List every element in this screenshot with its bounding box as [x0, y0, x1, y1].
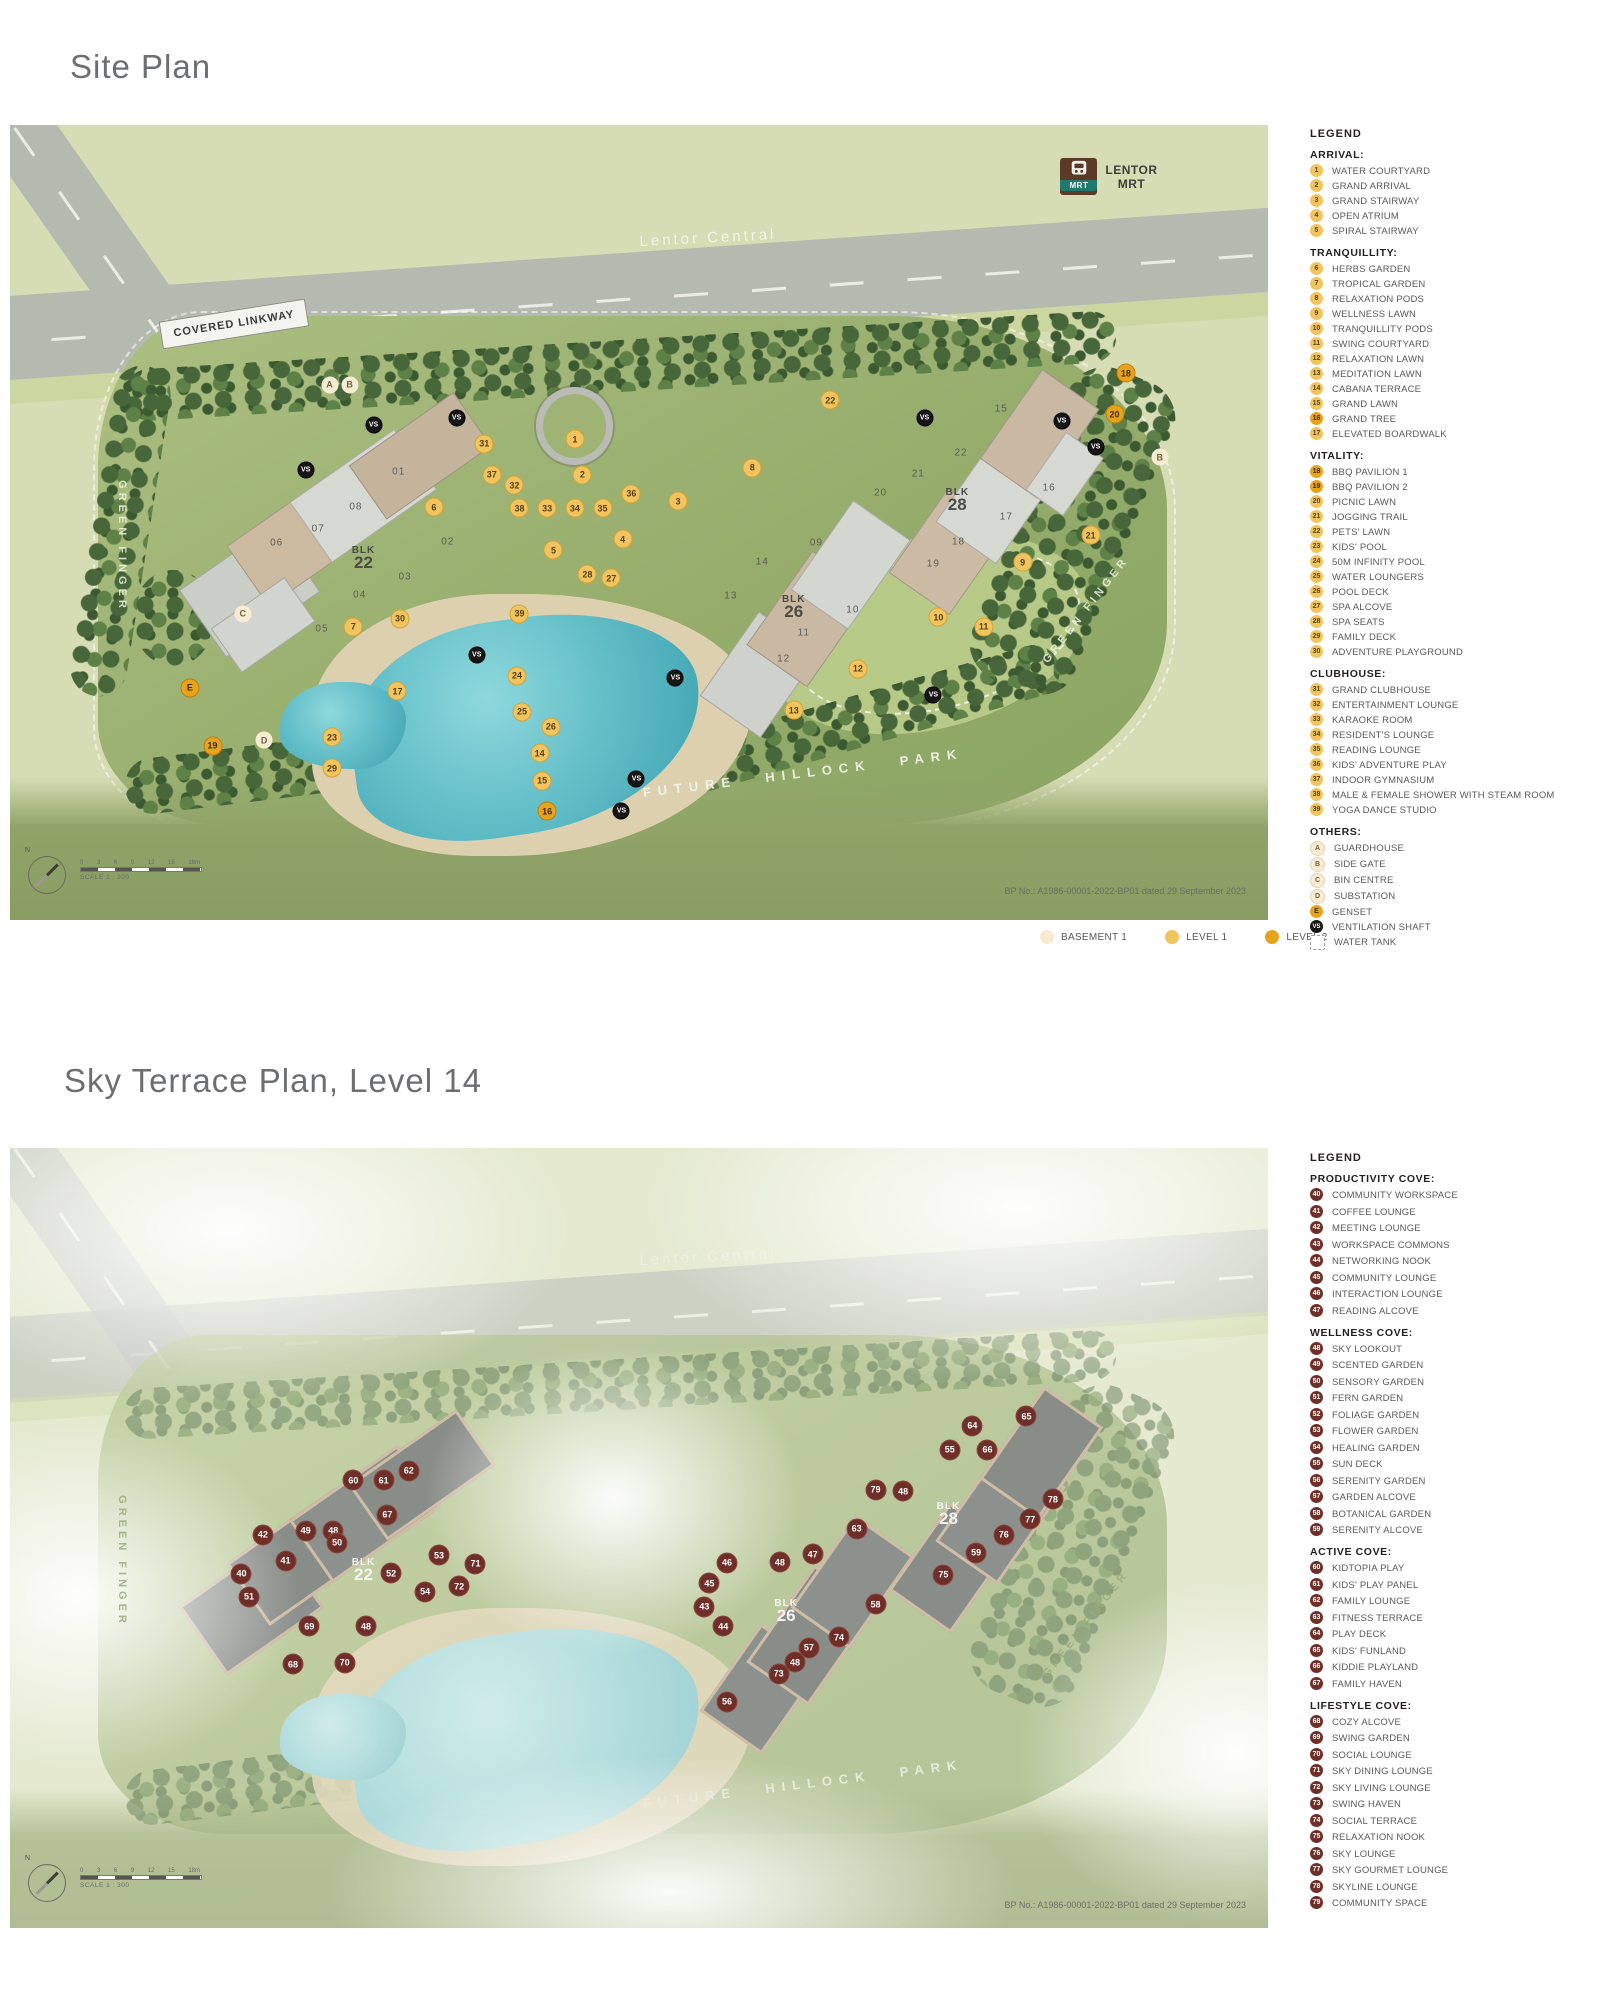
- legend-item-label: RELAXATION PODS: [1332, 292, 1424, 306]
- terrace-marker-76: 76: [993, 1524, 1014, 1545]
- legend-marker: 3: [1310, 194, 1323, 207]
- legend-item-label: SPA SEATS: [1332, 615, 1385, 629]
- legend-marker: 45: [1310, 1271, 1323, 1284]
- sky-terrace-title: Sky Terrace Plan, Level 14: [64, 1062, 482, 1100]
- legend-item-label: BOTANICAL GARDEN: [1332, 1507, 1431, 1521]
- legend-marker: 24: [1310, 555, 1323, 568]
- legend-item-label: SWING GARDEN: [1332, 1731, 1410, 1745]
- terrace-marker-54: 54: [415, 1581, 436, 1602]
- legend-item: 68COZY ALCOVE: [1310, 1715, 1596, 1729]
- legend-section-header: ARRIVAL:: [1310, 149, 1596, 161]
- legend-item: 48SKY LOOKOUT: [1310, 1342, 1596, 1356]
- legend-marker: 46: [1310, 1287, 1323, 1300]
- legend-marker: 70: [1310, 1748, 1323, 1761]
- legend-item: 4OPEN ATRIUM: [1310, 209, 1596, 223]
- legend-marker: 17: [1310, 427, 1323, 440]
- legend-marker: 71: [1310, 1764, 1323, 1777]
- level-key: BASEMENT 1LEVEL 1LEVEL 2: [1040, 930, 1328, 944]
- legend-item: 44NETWORKING NOOK: [1310, 1254, 1596, 1268]
- sky-terrace-markers-layer: BLK22BLK26BLK284041424344454647484848484…: [10, 1148, 1268, 1928]
- legend-item: 67FAMILY HAVEN: [1310, 1677, 1596, 1691]
- terrace-marker-61: 61: [373, 1470, 394, 1491]
- legend-section-header: PRODUCTIVITY COVE:: [1310, 1173, 1596, 1185]
- vs-marker-: VS: [628, 771, 645, 788]
- legend-item-label: INDOOR GYMNASIUM: [1332, 773, 1434, 787]
- legend-marker: 67: [1310, 1677, 1323, 1690]
- terrace-marker-56: 56: [717, 1691, 738, 1712]
- unit-label-04: 04: [353, 589, 366, 600]
- legend-item-label: ELEVATED BOARDWALK: [1332, 427, 1447, 441]
- legend-marker: 53: [1310, 1424, 1323, 1437]
- legend-item-label: FAMILY LOUNGE: [1332, 1594, 1410, 1608]
- site-marker-37: 37: [482, 465, 501, 484]
- site-marker-10: 10: [929, 608, 948, 627]
- bp-number: BP No.: A1986-00001-2022-BP01 dated 29 S…: [1004, 1900, 1246, 1910]
- site-marker-24: 24: [507, 666, 526, 685]
- legend-item-label: RESIDENT'S LOUNGE: [1332, 728, 1434, 742]
- legend-item: 13MEDITATION LAWN: [1310, 367, 1596, 381]
- legend-item: 6HERBS GARDEN: [1310, 262, 1596, 276]
- block-label-26: BLK26: [782, 594, 806, 618]
- site-marker-2: 2: [573, 465, 592, 484]
- vs-marker-: VS: [1053, 412, 1070, 429]
- site-marker-15: 15: [533, 771, 552, 790]
- scale-bar-stripes: [80, 867, 202, 872]
- unit-label-08: 08: [349, 502, 362, 513]
- legend-marker: 21: [1310, 510, 1323, 523]
- terrace-marker-43: 43: [694, 1596, 715, 1617]
- legend-title: LEGEND: [1310, 128, 1596, 140]
- legend-marker: 52: [1310, 1408, 1323, 1421]
- unit-label-22: 22: [954, 448, 967, 459]
- legend-section-header: CLUBHOUSE:: [1310, 668, 1596, 680]
- site-marker-25: 25: [513, 702, 532, 721]
- legend-item-label: GRAND TREE: [1332, 412, 1396, 426]
- unit-label-01: 01: [392, 466, 405, 477]
- site-marker-19: 19: [203, 736, 222, 755]
- legend-marker: 20: [1310, 495, 1323, 508]
- terrace-marker-47: 47: [802, 1544, 823, 1565]
- legend-item-label: BBQ PAVILION 1: [1332, 465, 1408, 479]
- block-label-22: BLK22: [352, 545, 376, 569]
- brochure-page: { "site_plan": { "title": "Site Plan", "…: [0, 0, 1600, 2012]
- legend-marker: 12: [1310, 352, 1323, 365]
- legend-item-label: KARAOKE ROOM: [1332, 713, 1413, 727]
- terrace-marker-67: 67: [377, 1504, 398, 1525]
- level-key-dot: [1165, 930, 1179, 944]
- terrace-marker-49: 49: [295, 1520, 316, 1541]
- mrt-name: LENTOR MRT: [1105, 163, 1157, 191]
- site-letter-B: B: [1151, 449, 1168, 466]
- unit-label-09: 09: [810, 538, 823, 549]
- terrace-marker-48: 48: [893, 1481, 914, 1502]
- north-label: N: [25, 1855, 30, 1862]
- legend-item: 10TRANQUILLITY PODS: [1310, 322, 1596, 336]
- legend-item-label: BIN CENTRE: [1334, 873, 1394, 887]
- site-plan-markers-layer: 0102030405060708091011121314151617181920…: [10, 125, 1268, 920]
- legend-item-label: RELAXATION NOOK: [1332, 1830, 1425, 1844]
- unit-label-10: 10: [846, 604, 859, 615]
- bp-number: BP No.: A1986-00001-2022-BP01 dated 29 S…: [1004, 886, 1246, 896]
- legend-item: 63FITNESS TERRACE: [1310, 1611, 1596, 1625]
- legend-item: 45COMMUNITY LOUNGE: [1310, 1271, 1596, 1285]
- legend-marker: 49: [1310, 1358, 1323, 1371]
- legend-item: 9WELLNESS LAWN: [1310, 307, 1596, 321]
- legend-item-label: ENTERTAINMENT LOUNGE: [1332, 698, 1458, 712]
- site-marker-16: 16: [538, 802, 557, 821]
- terrace-marker-50: 50: [327, 1532, 348, 1553]
- legend-marker: 28: [1310, 615, 1323, 628]
- level-key-label: BASEMENT 1: [1061, 932, 1127, 943]
- legend-item: DSUBSTATION: [1310, 889, 1596, 904]
- legend-item: 62FAMILY LOUNGE: [1310, 1594, 1596, 1608]
- legend-item: 76SKY LOUNGE: [1310, 1847, 1596, 1861]
- legend-item-label: SWING HAVEN: [1332, 1797, 1401, 1811]
- legend-item-label: SERENITY ALCOVE: [1332, 1523, 1423, 1537]
- legend-item: 39YOGA DANCE STUDIO: [1310, 803, 1596, 817]
- block-label-number: 22: [352, 1569, 376, 1581]
- scale-tick: 9: [131, 860, 134, 866]
- site-marker-35: 35: [593, 499, 612, 518]
- legend-item-label: WATER LOUNGERS: [1332, 570, 1424, 584]
- legend-section-header: VITALITY:: [1310, 450, 1596, 462]
- terrace-marker-71: 71: [465, 1553, 486, 1574]
- legend-item: 19BBQ PAVILION 2: [1310, 480, 1596, 494]
- vs-marker-: VS: [613, 803, 630, 820]
- unit-label-13: 13: [724, 590, 737, 601]
- site-marker-17: 17: [388, 682, 407, 701]
- unit-label-07: 07: [312, 523, 325, 534]
- legend-item-label: SPIRAL STAIRWAY: [1332, 224, 1419, 238]
- legend-section-header: OTHERS:: [1310, 826, 1596, 838]
- legend-item: 49SCENTED GARDEN: [1310, 1358, 1596, 1372]
- vs-marker-: VS: [925, 687, 942, 704]
- legend-marker: 18: [1310, 465, 1323, 478]
- legend-marker: 40: [1310, 1188, 1323, 1201]
- scale-bar: 0369121518m SCALE 1 : 300: [80, 1864, 202, 1889]
- legend-item: 73SWING HAVEN: [1310, 1797, 1596, 1811]
- legend-marker: B: [1310, 857, 1325, 872]
- legend-marker: 13: [1310, 367, 1323, 380]
- terrace-marker-63: 63: [846, 1518, 867, 1539]
- legend-item: 59SERENITY ALCOVE: [1310, 1523, 1596, 1537]
- legend-item: 61KIDS' PLAY PANEL: [1310, 1578, 1596, 1592]
- block-label-number: 28: [937, 1513, 961, 1525]
- legend-item: 64PLAY DECK: [1310, 1627, 1596, 1641]
- legend-item: 7TROPICAL GARDEN: [1310, 277, 1596, 291]
- compass-icon: N: [28, 1864, 66, 1902]
- legend-item: 42MEETING LOUNGE: [1310, 1221, 1596, 1235]
- site-marker-8: 8: [743, 458, 762, 477]
- legend-item-label: COZY ALCOVE: [1332, 1715, 1401, 1729]
- legend-item: 32ENTERTAINMENT LOUNGE: [1310, 698, 1596, 712]
- vs-marker-: VS: [365, 416, 382, 433]
- mrt-band-text: MRT: [1060, 180, 1097, 191]
- scale-tick: 0: [80, 1868, 83, 1874]
- unit-label-21: 21: [912, 469, 925, 480]
- site-marker-1: 1: [565, 430, 584, 449]
- legend-item-label: BBQ PAVILION 2: [1332, 480, 1408, 494]
- legend-item: 70SOCIAL LOUNGE: [1310, 1748, 1596, 1762]
- legend-item: 14CABANA TERRACE: [1310, 382, 1596, 396]
- legend-item-label: KIDS' ADVENTURE PLAY: [1332, 758, 1447, 772]
- legend-section-header: ACTIVE COVE:: [1310, 1546, 1596, 1558]
- terrace-marker-44: 44: [713, 1616, 734, 1637]
- unit-label-05: 05: [315, 624, 328, 635]
- legend-item-label: RELAXATION LAWN: [1332, 352, 1424, 366]
- site-marker-28: 28: [578, 565, 597, 584]
- legend-item-label: GRAND CLUBHOUSE: [1332, 683, 1431, 697]
- legend-item-label: SKY LOUNGE: [1332, 1847, 1396, 1861]
- legend-marker: 36: [1310, 758, 1323, 771]
- legend-marker: 75: [1310, 1830, 1323, 1843]
- unit-label-12: 12: [777, 654, 790, 665]
- legend-marker: 66: [1310, 1660, 1323, 1673]
- legend-item: 38MALE & FEMALE SHOWER WITH STEAM ROOM: [1310, 788, 1596, 802]
- terrace-marker-42: 42: [252, 1524, 273, 1545]
- legend-item-label: GRAND STAIRWAY: [1332, 194, 1419, 208]
- legend-marker: 4: [1310, 209, 1323, 222]
- terrace-marker-60: 60: [343, 1470, 364, 1491]
- legend-section-header: WELLNESS COVE:: [1310, 1327, 1596, 1339]
- site-marker-12: 12: [848, 659, 867, 678]
- terrace-marker-40: 40: [231, 1563, 252, 1584]
- legend-item-label: WATER COURTYARD: [1332, 164, 1430, 178]
- legend-item: 43WORKSPACE COMMONS: [1310, 1238, 1596, 1252]
- site-marker-36: 36: [622, 484, 641, 503]
- legend-marker: 34: [1310, 728, 1323, 741]
- site-marker-9: 9: [1013, 553, 1032, 572]
- legend-item-label: SUN DECK: [1332, 1457, 1383, 1471]
- legend-marker: 60: [1310, 1561, 1323, 1574]
- legend-marker: VS: [1310, 920, 1323, 933]
- site-marker-6: 6: [424, 498, 443, 517]
- site-letter-A: A: [321, 376, 338, 393]
- unit-label-14: 14: [756, 557, 769, 568]
- legend-item: BSIDE GATE: [1310, 857, 1596, 872]
- site-marker-14: 14: [530, 744, 549, 763]
- legend-marker: 68: [1310, 1715, 1323, 1728]
- legend-marker: 72: [1310, 1781, 1323, 1794]
- unit-label-06: 06: [270, 538, 283, 549]
- legend-item-label: GRAND ARRIVAL: [1332, 179, 1411, 193]
- legend-item-label: MEETING LOUNGE: [1332, 1221, 1421, 1235]
- site-letter-B: B: [341, 376, 358, 393]
- legend-marker: 77: [1310, 1863, 1323, 1876]
- legend-item: 78SKYLINE LOUNGE: [1310, 1880, 1596, 1894]
- legend-item: 56SERENITY GARDEN: [1310, 1474, 1596, 1488]
- level-key-item: BASEMENT 1: [1040, 930, 1127, 944]
- legend-marker: 16: [1310, 412, 1323, 425]
- legend-item: 65KIDS' FUNLAND: [1310, 1644, 1596, 1658]
- legend-item-label: SKY LOOKOUT: [1332, 1342, 1402, 1356]
- unit-label-19: 19: [927, 558, 940, 569]
- terrace-marker-55: 55: [939, 1439, 960, 1460]
- scale-ticks: 0369121518m: [80, 1868, 200, 1874]
- legend-marker: 62: [1310, 1594, 1323, 1607]
- unit-label-03: 03: [398, 572, 411, 583]
- legend-marker: 58: [1310, 1507, 1323, 1520]
- legend-item: 27SPA ALCOVE: [1310, 600, 1596, 614]
- legend-item-label: FOLIAGE GARDEN: [1332, 1408, 1419, 1422]
- legend-item: 51FERN GARDEN: [1310, 1391, 1596, 1405]
- legend-item-label: YOGA DANCE STUDIO: [1332, 803, 1437, 817]
- level-key-dot: [1265, 930, 1279, 944]
- legend-item: 25WATER LOUNGERS: [1310, 570, 1596, 584]
- legend-marker: 2: [1310, 179, 1323, 192]
- terrace-marker-52: 52: [381, 1563, 402, 1584]
- legend-item-label: FAMILY HAVEN: [1332, 1677, 1402, 1691]
- scale-compass: N 0369121518m SCALE 1 : 300: [28, 856, 202, 894]
- site-marker-26: 26: [541, 717, 560, 736]
- terrace-marker-62: 62: [398, 1460, 419, 1481]
- legend-item-label: FITNESS TERRACE: [1332, 1611, 1423, 1625]
- legend-item-label: VENTILATION SHAFT: [1332, 920, 1431, 934]
- scale-tick: 0: [80, 860, 83, 866]
- terrace-marker-68: 68: [283, 1654, 304, 1675]
- legend-item-label: ADVENTURE PLAYGROUND: [1332, 645, 1463, 659]
- legend-marker: 1: [1310, 164, 1323, 177]
- legend-item-label: SUBSTATION: [1334, 889, 1395, 903]
- scale-tick: 3: [97, 1868, 100, 1874]
- terrace-marker-51: 51: [239, 1586, 260, 1607]
- legend-item-label: CABANA TERRACE: [1332, 382, 1421, 396]
- legend-item: 55SUN DECK: [1310, 1457, 1596, 1471]
- legend-item-label: SWING COURTYARD: [1332, 337, 1429, 351]
- lentor-mrt-badge: MRT LENTOR MRT: [1060, 158, 1157, 195]
- scale-text: SCALE 1 : 300: [80, 1882, 202, 1889]
- legend-marker: 7: [1310, 277, 1323, 290]
- legend-marker: 37: [1310, 773, 1323, 786]
- legend-item: 11SWING COURTYARD: [1310, 337, 1596, 351]
- legend-item-label: KIDTOPIA PLAY: [1332, 1561, 1404, 1575]
- site-letter-D: D: [256, 732, 273, 749]
- vs-marker-: VS: [916, 410, 933, 427]
- legend-item-label: HERBS GARDEN: [1332, 262, 1410, 276]
- legend-marker: 55: [1310, 1457, 1323, 1470]
- north-label: N: [25, 847, 30, 854]
- legend-item: 36KIDS' ADVENTURE PLAY: [1310, 758, 1596, 772]
- compass-icon: N: [28, 856, 66, 894]
- legend-item: EGENSET: [1310, 905, 1596, 919]
- legend-marker: 61: [1310, 1578, 1323, 1591]
- terrace-marker-59: 59: [966, 1542, 987, 1563]
- legend-item-label: COMMUNITY LOUNGE: [1332, 1271, 1436, 1285]
- site-marker-5: 5: [544, 541, 563, 560]
- level-key-label: LEVEL 1: [1186, 932, 1227, 943]
- legend-item: 18BBQ PAVILION 1: [1310, 465, 1596, 479]
- legend-marker: 57: [1310, 1490, 1323, 1503]
- legend-item-label: KIDDIE PLAYLAND: [1332, 1660, 1418, 1674]
- legend-item: 57GARDEN ALCOVE: [1310, 1490, 1596, 1504]
- legend-marker: 38: [1310, 788, 1323, 801]
- legend-item: 71SKY DINING LOUNGE: [1310, 1764, 1596, 1778]
- mrt-name-line1: LENTOR: [1105, 163, 1157, 177]
- legend-marker: 25: [1310, 570, 1323, 583]
- legend-item: 16GRAND TREE: [1310, 412, 1596, 426]
- legend-item: 15GRAND LAWN: [1310, 397, 1596, 411]
- legend-item-label: COMMUNITY SPACE: [1332, 1896, 1428, 1910]
- legend-item-label: SOCIAL LOUNGE: [1332, 1748, 1412, 1762]
- legend-marker: 76: [1310, 1847, 1323, 1860]
- mrt-name-line2: MRT: [1105, 177, 1157, 191]
- legend-item: 41COFFEE LOUNGE: [1310, 1205, 1596, 1219]
- site-marker-11: 11: [974, 617, 993, 636]
- legend-item-label: GENSET: [1332, 905, 1372, 919]
- legend-marker: 22: [1310, 525, 1323, 538]
- legend-item: 60KIDTOPIA PLAY: [1310, 1561, 1596, 1575]
- legend-item: 8RELAXATION PODS: [1310, 292, 1596, 306]
- legend-marker: 35: [1310, 743, 1323, 756]
- legend-item-label: COMMUNITY WORKSPACE: [1332, 1188, 1458, 1202]
- legend-item: 30ADVENTURE PLAYGROUND: [1310, 645, 1596, 659]
- legend-item: 2450M INFINITY POOL: [1310, 555, 1596, 569]
- legend-marker: 29: [1310, 630, 1323, 643]
- vs-marker-: VS: [1087, 438, 1104, 455]
- legend-item-label: SKY LIVING LOUNGE: [1332, 1781, 1431, 1795]
- level-key-dot: [1040, 930, 1054, 944]
- site-marker-7: 7: [344, 617, 363, 636]
- legend-item-label: FAMILY DECK: [1332, 630, 1396, 644]
- legend-item-label: OPEN ATRIUM: [1332, 209, 1399, 223]
- legend-marker: 65: [1310, 1644, 1323, 1657]
- terrace-marker-45: 45: [699, 1573, 720, 1594]
- terrace-marker-48: 48: [769, 1552, 790, 1573]
- legend-item-label: JOGGING TRAIL: [1332, 510, 1408, 524]
- legend-marker: 15: [1310, 397, 1323, 410]
- legend-item: 35READING LOUNGE: [1310, 743, 1596, 757]
- site-marker-33: 33: [538, 499, 557, 518]
- site-letter-C: C: [234, 605, 251, 622]
- legend-item-label: PETS' LAWN: [1332, 525, 1390, 539]
- legend-item: 31GRAND CLUBHOUSE: [1310, 683, 1596, 697]
- legend-item: 46INTERACTION LOUNGE: [1310, 1287, 1596, 1301]
- legend-item-label: KIDS' PLAY PANEL: [1332, 1578, 1418, 1592]
- legend-item-label: 50M INFINITY POOL: [1332, 555, 1425, 569]
- site-plan-title: Site Plan: [70, 48, 211, 86]
- unit-label-02: 02: [441, 537, 454, 548]
- unit-label-15: 15: [995, 403, 1008, 414]
- legend-marker: 59: [1310, 1523, 1323, 1536]
- site-plan-map: Lentor Central COVERED LINKWAY GREEN FIN…: [10, 125, 1268, 920]
- unit-label-17: 17: [1000, 511, 1013, 522]
- legend-section-header: TRANQUILLITY:: [1310, 247, 1596, 259]
- vs-marker-: VS: [448, 410, 465, 427]
- scale-tick: 6: [114, 1868, 117, 1874]
- site-marker-32: 32: [505, 476, 524, 495]
- terrace-marker-70: 70: [334, 1652, 355, 1673]
- terrace-marker-73: 73: [768, 1663, 789, 1684]
- legend-marker: 42: [1310, 1221, 1323, 1234]
- block-label-28: BLK28: [945, 487, 969, 511]
- legend-marker: 43: [1310, 1238, 1323, 1251]
- site-marker-3: 3: [668, 492, 687, 511]
- legend-item: WATER TANK: [1310, 935, 1596, 950]
- terrace-marker-78: 78: [1042, 1489, 1063, 1510]
- scale-bar: 0369121518m SCALE 1 : 300: [80, 856, 202, 881]
- unit-label-16: 16: [1043, 483, 1056, 494]
- site-marker-23: 23: [323, 728, 342, 747]
- scale-bar-stripes: [80, 1875, 202, 1880]
- legend-marker: 33: [1310, 713, 1323, 726]
- legend-marker: 79: [1310, 1896, 1323, 1909]
- legend-item: 21JOGGING TRAIL: [1310, 510, 1596, 524]
- block-label-26: BLK26: [774, 1598, 798, 1622]
- vs-marker-: VS: [468, 647, 485, 664]
- legend-marker: C: [1310, 873, 1325, 888]
- scale-compass: N 0369121518m SCALE 1 : 300: [28, 1864, 202, 1902]
- scale-tick: 18m: [188, 860, 200, 866]
